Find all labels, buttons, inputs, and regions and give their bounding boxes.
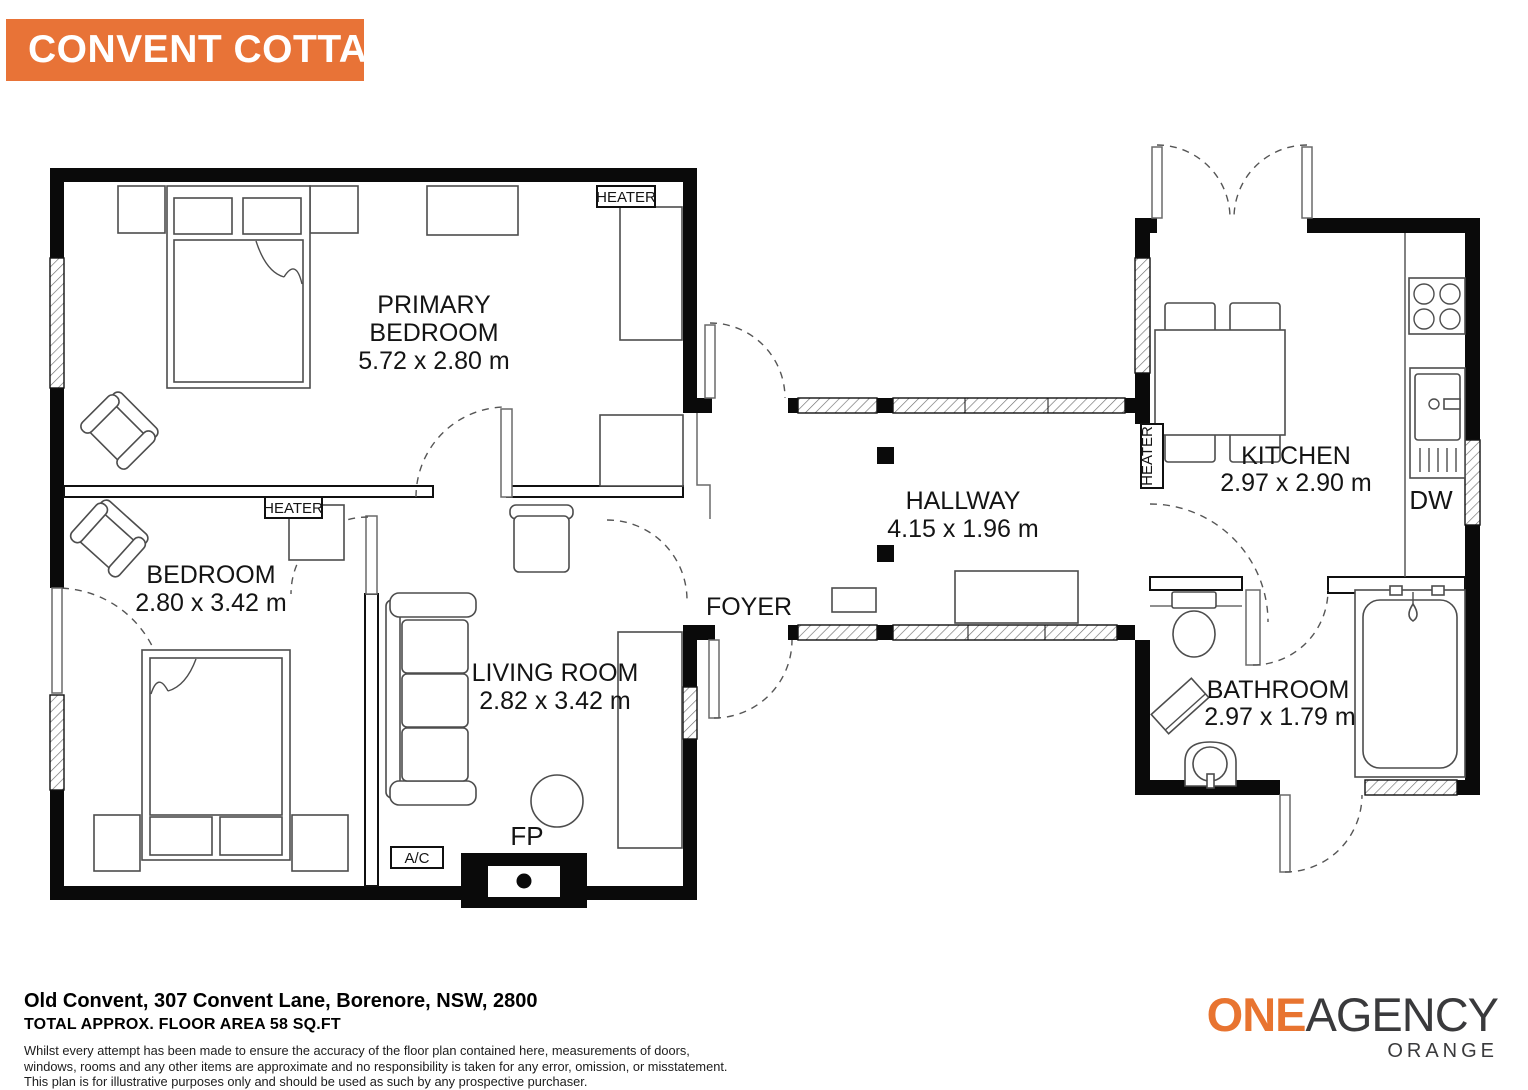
armchair <box>510 505 573 572</box>
label-heater-primary: HEATER <box>596 189 656 206</box>
post <box>877 545 894 562</box>
bath-mat <box>1151 678 1209 733</box>
floor-plan: PRIMARY BEDROOM 5.72 x 2.80 m BEDROOM 2.… <box>0 0 1528 1080</box>
label-bathroom-dims: 2.97 x 1.79 m <box>1204 703 1355 731</box>
label-primary-bedroom-dims: 5.72 x 2.80 m <box>358 347 509 375</box>
door-leaf <box>709 640 719 718</box>
disclaimer-line-2: windows, rooms and any other items are a… <box>24 1059 784 1075</box>
door-leaf <box>1302 147 1312 218</box>
stove <box>1409 278 1465 334</box>
disclaimer-line-3: This plan is for illustrative purposes o… <box>24 1074 784 1090</box>
hall-table <box>832 588 876 612</box>
door-leaf <box>366 516 377 594</box>
label-kitchen: KITCHEN <box>1241 442 1351 470</box>
label-bedroom: BEDROOM <box>146 561 275 589</box>
disclaimer-line-1: Whilst every attempt has been made to en… <box>24 1043 784 1059</box>
label-dishwasher: DW <box>1409 485 1453 515</box>
title-banner: CONVENT COTTAGE <box>6 19 364 81</box>
label-living-room-dims: 2.82 x 3.42 m <box>479 687 630 715</box>
door-leaf <box>1152 147 1162 218</box>
footer: Old Convent, 307 Convent Lane, Borenore,… <box>24 990 784 1090</box>
armchair <box>68 496 152 579</box>
toilet <box>1172 592 1216 657</box>
bathroom-sink <box>1185 742 1236 788</box>
label-bedroom-dims: 2.80 x 3.42 m <box>135 589 286 617</box>
primary-bed <box>118 186 358 388</box>
bedroom-bed <box>94 650 348 871</box>
door-leaf <box>501 409 512 497</box>
label-heater-kitchen: HEATER <box>1139 426 1156 486</box>
bathtub <box>1355 586 1465 777</box>
armchair <box>78 388 161 471</box>
logo-one: ONE <box>1207 988 1306 1041</box>
kitchen-table <box>1155 303 1285 462</box>
agency-logo: ONEAGENCY ORANGE <box>1168 992 1498 1063</box>
door-leaf <box>1246 590 1260 665</box>
label-hallway: HALLWAY <box>906 487 1021 515</box>
label-primary-bedroom-line2: BEDROOM <box>369 319 498 347</box>
floor-area: TOTAL APPROX. FLOOR AREA 58 SQ.FT <box>24 1016 784 1034</box>
wardrobe <box>620 207 682 340</box>
label-primary-bedroom-line1: PRIMARY <box>377 291 491 319</box>
label-ac: A/C <box>404 850 429 867</box>
label-bathroom: BATHROOM <box>1207 676 1350 704</box>
fireplace-hearth <box>461 853 587 908</box>
door-leaf <box>705 325 715 398</box>
console-table <box>955 571 1078 623</box>
fireplace-round <box>531 775 583 827</box>
label-kitchen-dims: 2.97 x 2.90 m <box>1220 469 1371 497</box>
logo-agency: AGENCY <box>1306 988 1499 1041</box>
door-leaf <box>1280 795 1290 872</box>
label-foyer: FOYER <box>706 593 792 621</box>
page-title: CONVENT COTTAGE <box>6 28 425 72</box>
agency-logo-wordmark: ONEAGENCY <box>1168 992 1498 1038</box>
dresser <box>427 186 518 235</box>
property-address: Old Convent, 307 Convent Lane, Borenore,… <box>24 990 784 1013</box>
label-living-room: LIVING ROOM <box>472 659 639 687</box>
label-heater-bedroom: HEATER <box>263 500 323 517</box>
furniture <box>68 186 1465 871</box>
label-fireplace: FP <box>510 821 543 851</box>
sink-dishwasher-unit <box>1410 368 1465 478</box>
post <box>877 447 894 464</box>
logo-location: ORANGE <box>1168 1040 1498 1063</box>
door-leaf <box>52 588 62 693</box>
label-hallway-dims: 4.15 x 1.96 m <box>887 515 1038 543</box>
sofa <box>386 593 476 805</box>
chest <box>600 415 683 486</box>
